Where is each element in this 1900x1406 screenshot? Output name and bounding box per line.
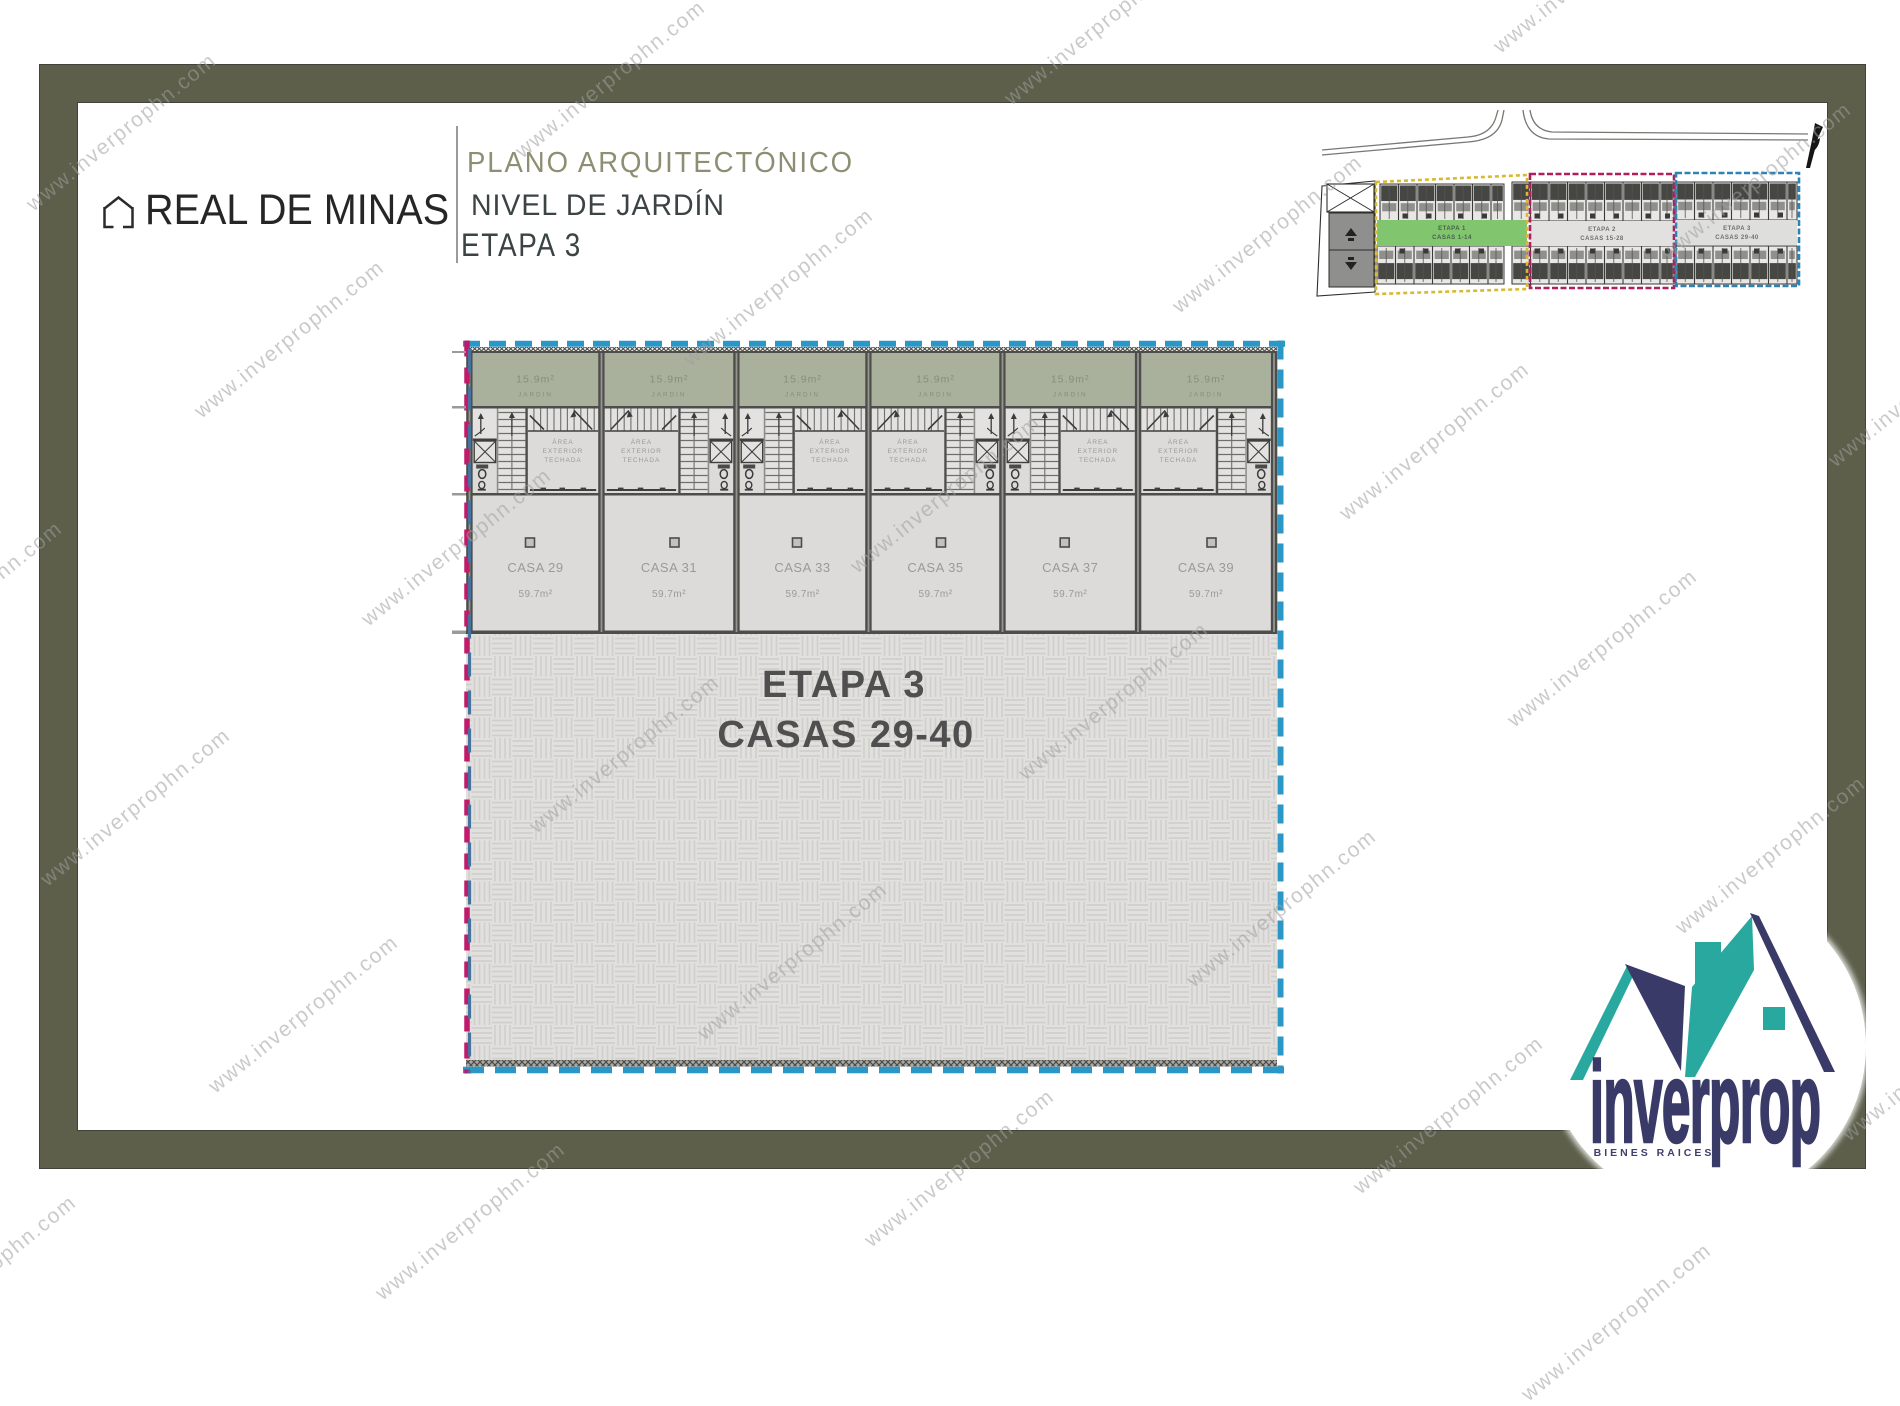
svg-text:BIENES RAICES: BIENES RAICES xyxy=(1594,1147,1715,1159)
